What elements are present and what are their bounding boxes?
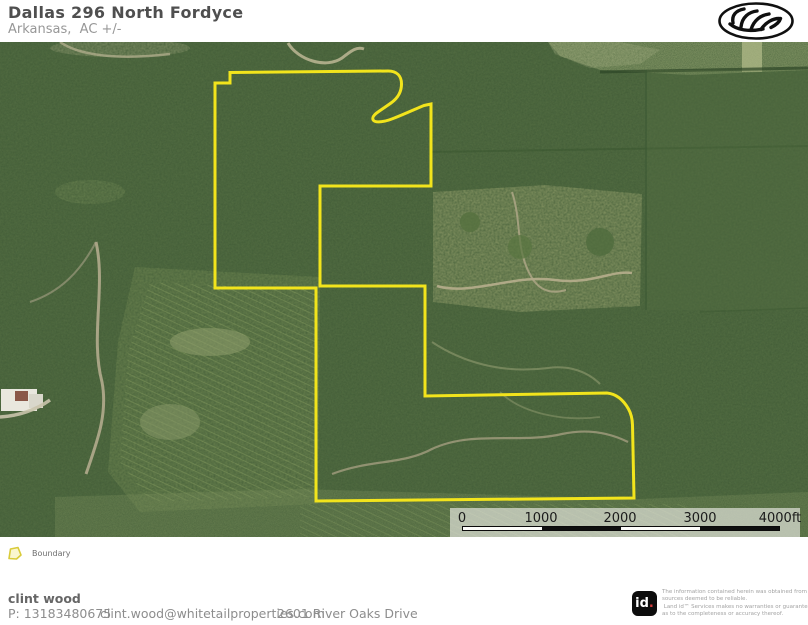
disclaimer-line: as to the completeness or accuracy there… xyxy=(662,611,808,618)
boundary-polygon-icon xyxy=(7,546,23,561)
aerial-imagery xyxy=(0,42,808,537)
land-id-map-export: Dallas 296 North Fordyce Arkansas, AC +/… xyxy=(0,0,808,625)
legend-item-label: Boundary xyxy=(32,549,71,558)
whitetail-properties-antler-logo xyxy=(717,2,795,44)
page-title: Dallas 296 North Fordyce xyxy=(8,3,243,22)
land-id-logo: id. xyxy=(632,591,657,616)
legend-item-boundary: Boundary xyxy=(7,546,71,561)
legend: Boundary xyxy=(0,537,808,585)
scale-tick-label: 0 xyxy=(458,511,466,526)
footer: clint wood P: 13183480675 clint.wood@whi… xyxy=(0,585,808,625)
disclaimer-line: Land id™ Services makes no warranties or… xyxy=(662,604,808,611)
disclaimer-text: The information contained herein was obt… xyxy=(662,589,808,619)
scale-tick-label: 4000ft xyxy=(759,511,802,526)
scale-tick-label: 3000 xyxy=(683,511,716,526)
scale-bar-segments xyxy=(462,526,780,531)
scale-bar: 0 1000 2000 3000 4000ft xyxy=(450,508,800,537)
scale-tick-label: 2000 xyxy=(603,511,636,526)
agent-name: clint wood xyxy=(8,591,81,606)
disclaimer-line: The information contained herein was obt… xyxy=(662,589,808,596)
scale-tick-label: 1000 xyxy=(524,511,557,526)
agent-phone: P: 13183480675 xyxy=(8,606,111,621)
land-id-logo-text: id xyxy=(635,596,649,611)
agent-address: 2601 River Oaks Drive xyxy=(277,606,418,621)
land-id-logo-dot: . xyxy=(649,596,654,611)
map-header: Dallas 296 North Fordyce Arkansas, AC +/… xyxy=(0,0,808,42)
map-canvas[interactable]: 0 1000 2000 3000 4000ft xyxy=(0,42,808,537)
page-subtitle: Arkansas, AC +/- xyxy=(8,22,122,37)
disclaimer-line: sources deemed to be reliable. xyxy=(662,596,808,603)
